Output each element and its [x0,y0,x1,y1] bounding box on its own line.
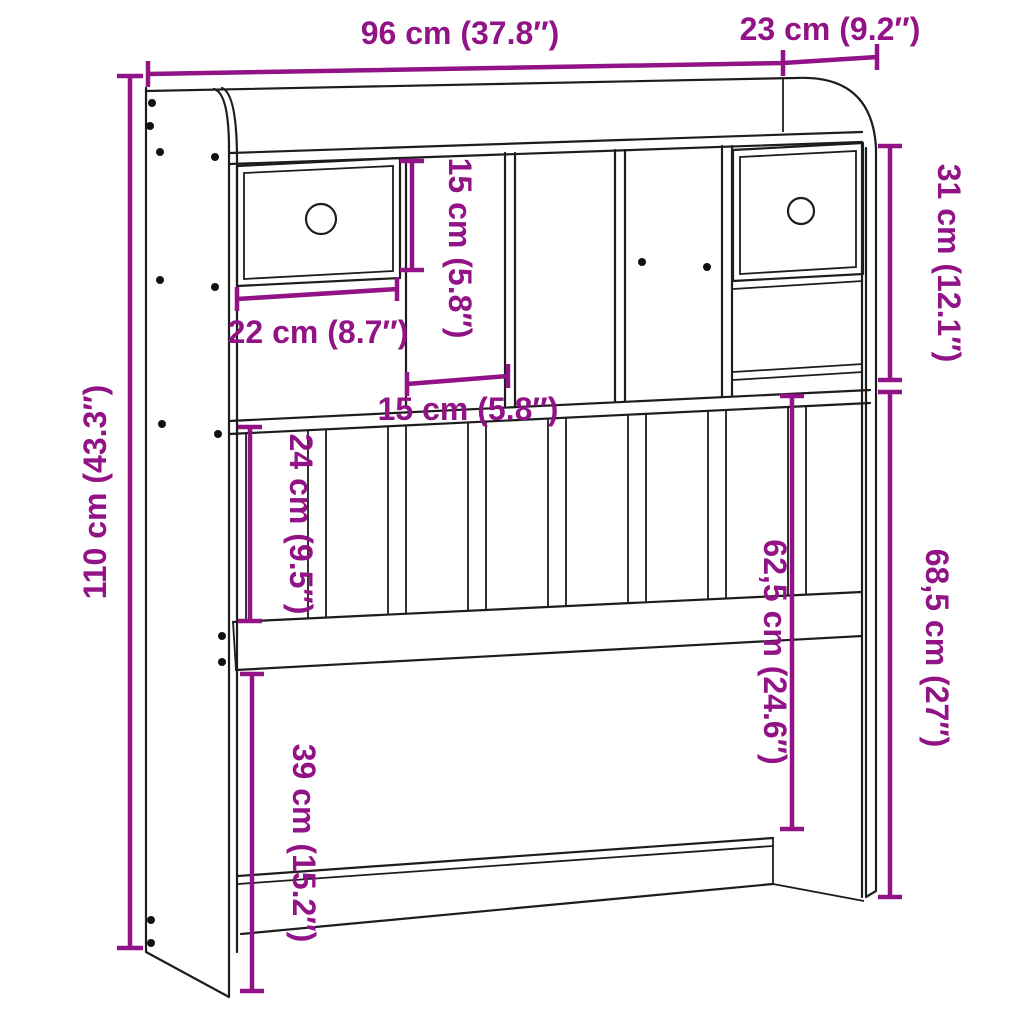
dim-line-slat-section-height [238,427,262,621]
right-drawer-knob [788,198,814,224]
dim-label-overall-width: 96 cm (37.8″) [361,15,560,51]
dim-label-drawer-width: 22 cm (8.7″) [228,314,409,350]
left-drawer-knob [306,204,336,234]
dim-label-cubby-width: 15 cm (5.8″) [378,391,559,427]
dim-line-top-section-height [878,146,902,380]
dim-line-side-depth [783,44,877,70]
dim-label-overall-height: 110 cm (43.3″) [77,385,113,600]
dim-label-right-section-height: 68,5 cm (27″) [919,549,955,748]
slat-panel [246,406,806,621]
dim-line-overall-height [117,76,143,948]
left-side-panel [146,88,237,997]
dim-line-cubby-height [400,161,424,270]
dim-line-overall-width [148,50,783,87]
top-board [146,78,876,164]
dim-label-shelf-to-rail-height: 62,5 cm (24.6″) [757,539,793,764]
right-drawer [733,143,863,281]
shelf-pin-holes [146,99,711,947]
dim-label-lower-gap-height: 39 cm (15.2″) [286,744,322,943]
dim-line-right-section-height [878,392,902,897]
dim-label-slat-section-height: 24 cm (9.5″) [283,434,319,615]
headboard-dimension-drawing: 96 cm (37.8″) 23 cm (9.2″) 110 cm (43.3″… [0,0,1024,1024]
dim-label-side-depth: 23 cm (9.2″) [740,11,921,47]
dim-label-top-section-height: 31 cm (12.1″) [931,164,967,363]
dim-line-lower-gap-height [240,674,264,991]
right-cubby [733,281,863,380]
left-drawer [237,158,400,286]
diagram-canvas: 96 cm (37.8″) 23 cm (9.2″) 110 cm (43.3″… [0,0,1024,1024]
dim-label-cubby-height: 15 cm (5.8″) [442,158,478,339]
